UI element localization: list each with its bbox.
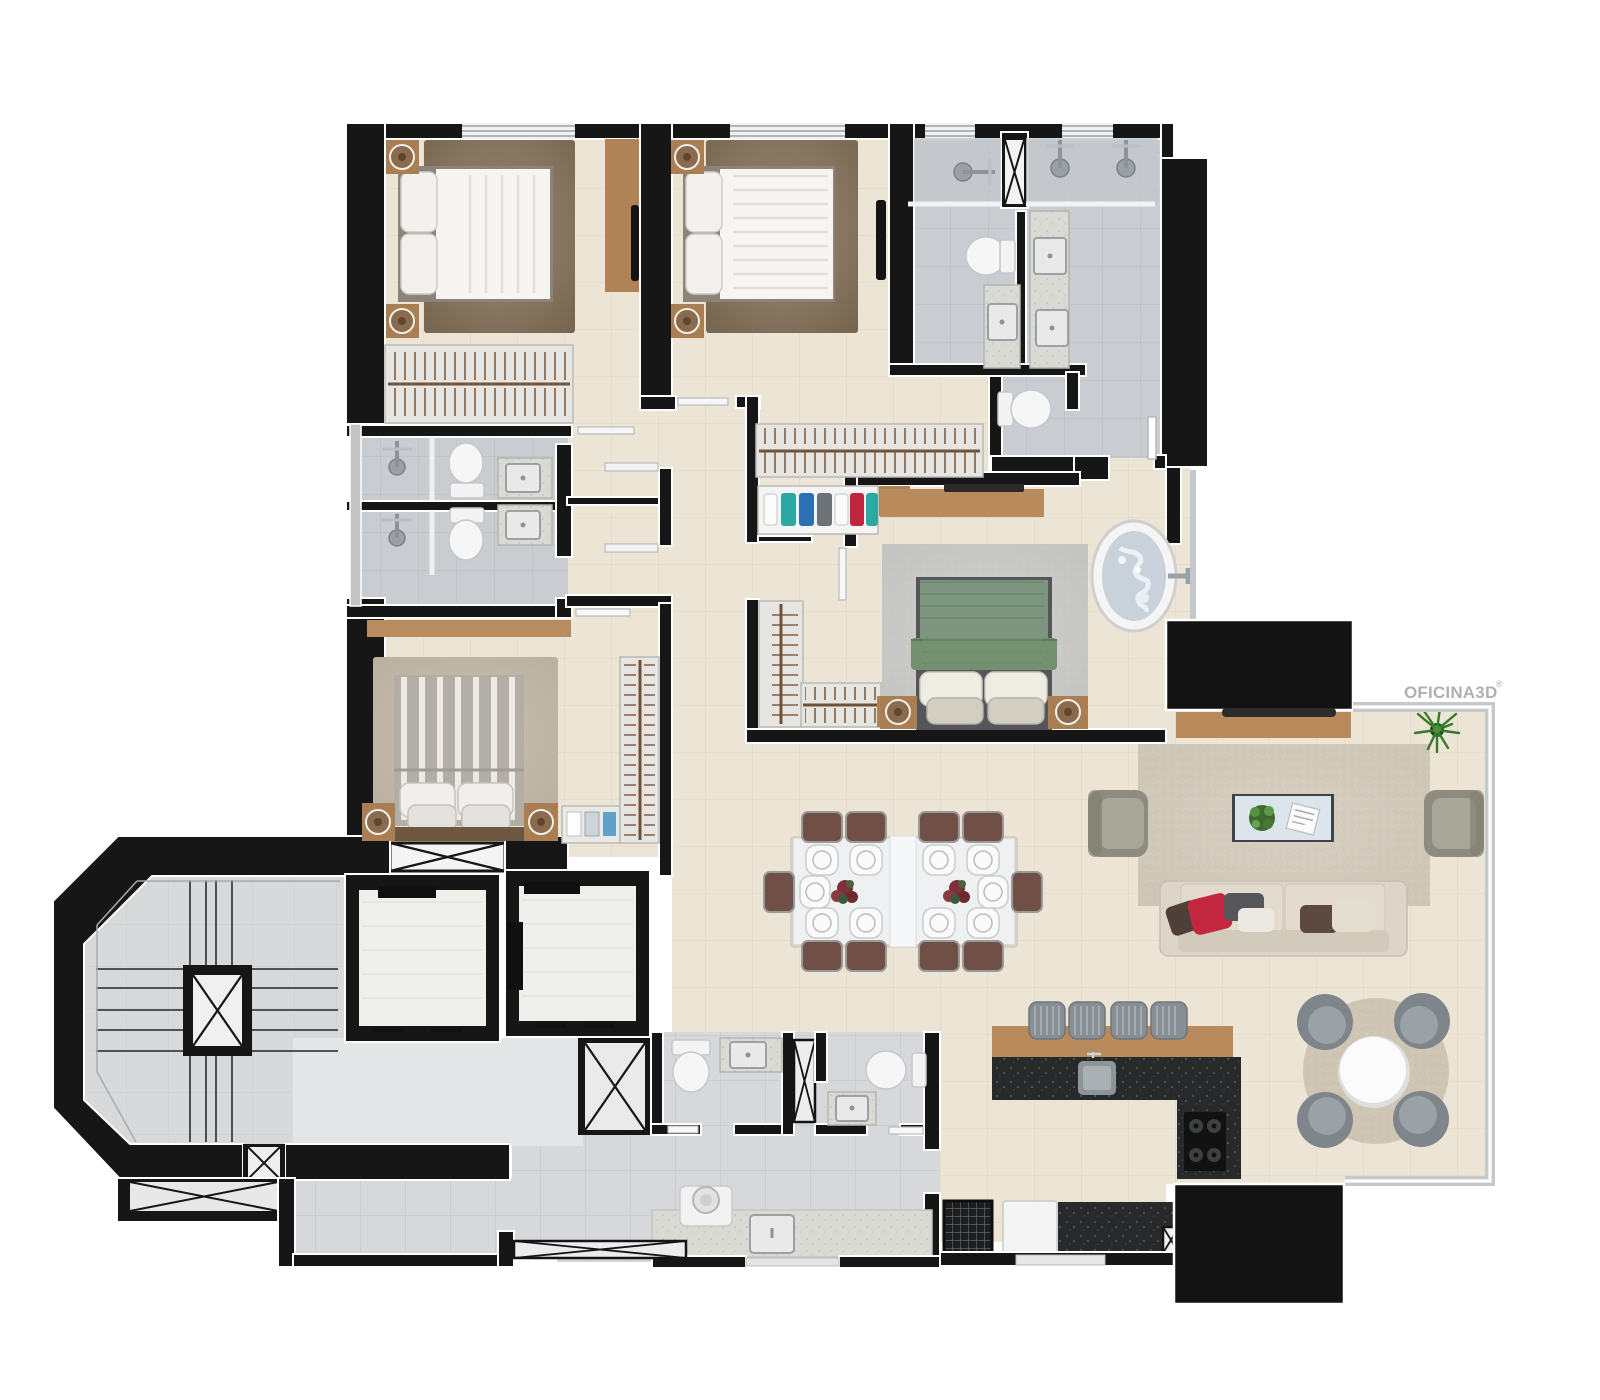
svg-text:®: ®: [1496, 679, 1503, 689]
svg-text:OFICINA3D: OFICINA3D: [1404, 683, 1497, 702]
